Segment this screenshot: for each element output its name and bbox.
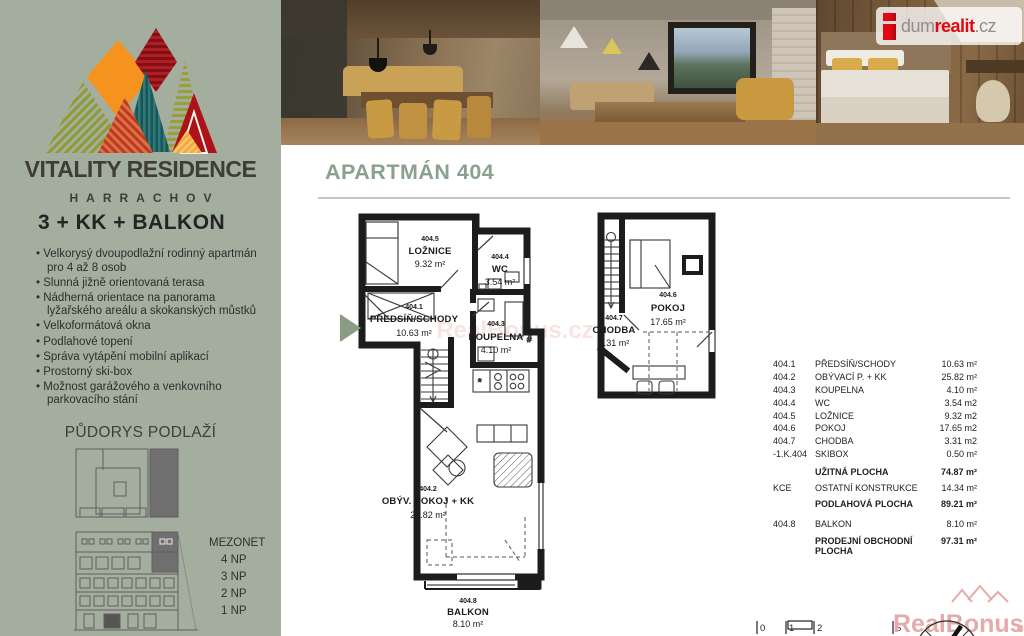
feature-item: Podlahové topení xyxy=(36,336,270,350)
room-name: CHODBA xyxy=(593,325,636,336)
room-area: 3.31 m² xyxy=(599,338,630,348)
floorplan-section-heading: PŮDORYS PODLAŽÍ xyxy=(0,424,281,442)
table-row: -1.K.404 SKIBOX 0.50 m² xyxy=(773,449,977,462)
room-area: 4.10 m² xyxy=(481,345,512,355)
table-row-total: PRODEJNÍ OBCHODNÍ PLOCHA 97.31 m² xyxy=(773,536,977,549)
table-row-total: UŽITNÁ PLOCHA 74.87 m² xyxy=(773,467,977,480)
feature-item: Možnost garážového a venkovního parkovac… xyxy=(36,381,270,408)
logo-text-cz: .cz xyxy=(975,16,997,36)
room-area: 8.10 m² xyxy=(453,619,484,629)
brand-name: VITALITY RESIDENCE xyxy=(0,156,281,183)
room-name: POKOJ xyxy=(651,303,685,314)
room-code: 404.7 xyxy=(605,315,623,322)
mezonet-label: MEZONET xyxy=(209,537,265,549)
room-name: OBÝV. POKOJ + KK xyxy=(382,495,474,507)
room-name: WC xyxy=(492,264,508,275)
scale-label: 0 xyxy=(760,623,765,634)
room-area: 10.63 m² xyxy=(396,328,432,338)
brochure-page: VITALITY RESIDENCE HARRACHOV 3 + KK + BA… xyxy=(0,0,1024,636)
agency-logo: dumrealit.cz xyxy=(876,7,1022,45)
room-code: 404.8 xyxy=(459,598,477,605)
table-row: 404.4 WC 3.54 m2 xyxy=(773,398,977,411)
room-area: 17.65 m² xyxy=(650,317,686,327)
chair-icon xyxy=(976,80,1010,122)
pendant-lamp-icon xyxy=(560,26,588,48)
svg-text:*: * xyxy=(478,377,482,387)
table-row: 404.7 CHODBA 3.31 m2 xyxy=(773,436,977,449)
floor-plan-upper: 404.6 POKOJ 17.65 m² 404.7 CHODBA 3.31 m… xyxy=(593,216,717,395)
logo-text-realit: realit xyxy=(935,16,975,36)
feature-list: Velkorysý dvoupodlažní rodinný apartmán … xyxy=(36,248,270,410)
room-area: 9.32 m² xyxy=(415,259,446,269)
photo-dining-kitchen xyxy=(281,0,540,145)
table-row-total: PODLAHOVÁ PLOCHA 89.21 m² xyxy=(773,499,977,512)
table-row: 404.6 POKOJ 17.65 m2 xyxy=(773,423,977,436)
room-code: 404.3 xyxy=(487,321,505,328)
mountains-logo-icon xyxy=(38,0,242,155)
room-code: 404.6 xyxy=(659,292,677,299)
room-area: 3.54 m² xyxy=(485,277,516,287)
floor-outline-diagram xyxy=(70,444,186,524)
table-row: 404.8 BALKON 8.10 m² xyxy=(773,519,977,532)
area-table: 404.1 PŘEDSÍŇ/SCHODY 10.63 m² 404.2 OBÝV… xyxy=(773,359,977,549)
room-name: KOUPELNA xyxy=(469,332,524,343)
room-area: 25.82 m² xyxy=(410,510,446,520)
floor-label-1np: 1 NP xyxy=(221,605,247,617)
brand-location: HARRACHOV xyxy=(0,191,281,205)
entrance-arrow-icon xyxy=(340,314,361,342)
room-name: LOŽNICE xyxy=(408,245,451,257)
feature-item: Velkorysý dvoupodlažní rodinný apartmán … xyxy=(36,248,270,275)
room-name: PŘEDSÍŇ/SCHODY xyxy=(370,313,459,325)
pendant-lamp-icon xyxy=(377,38,379,60)
scale-label: 1 xyxy=(789,623,794,634)
floor-label-3np: 3 NP xyxy=(221,571,247,583)
room-code: 404.1 xyxy=(405,304,423,311)
svg-text:#: # xyxy=(527,335,532,344)
room-code: 404.5 xyxy=(421,236,439,243)
watermark-tld: .cz xyxy=(1013,620,1024,635)
room-name: BALKON xyxy=(447,607,489,618)
photo-living-dining xyxy=(540,0,816,145)
feature-item: Prostorný ski-box xyxy=(36,366,270,380)
table-row: 404.5 LOŽNICE 9.32 m2 xyxy=(773,411,977,424)
table-row: 404.3 KOUPELNA 4.10 m² xyxy=(773,385,977,398)
table-row: 404.2 OBÝVACÍ P. + KK 25.82 m² xyxy=(773,372,977,385)
scale-label: 2 xyxy=(817,623,822,634)
stairs-upper xyxy=(604,233,619,309)
stairs-lower xyxy=(421,349,448,402)
floor-label-2np: 2 NP xyxy=(221,588,247,600)
feature-item: Nádherná orientace na panorama lyžařskéh… xyxy=(36,292,270,319)
feature-item: Slunná jižně orientovaná terasa xyxy=(36,277,270,291)
room-code: 404.2 xyxy=(419,486,437,493)
sidebar: VITALITY RESIDENCE HARRACHOV 3 + KK + BA… xyxy=(0,0,281,636)
kitchen-counter: * xyxy=(473,370,529,392)
building-elevation-diagram xyxy=(70,528,210,632)
floor-label-4np: 4 NP xyxy=(221,554,247,566)
unit-type-heading: 3 + KK + BALKON xyxy=(38,211,225,235)
logo-text-dum: dum xyxy=(901,16,935,36)
table-row: 404.1 PŘEDSÍŇ/SCHODY 10.63 m² xyxy=(773,359,977,372)
room-code: 404.4 xyxy=(491,254,509,261)
house-i-icon xyxy=(883,13,896,40)
feature-item: Velkoformátová okna xyxy=(36,320,270,334)
floor-plan-lower: # * xyxy=(362,217,546,629)
table-row: KCE OSTATNÍ KONSTRUKCE 14.34 m² xyxy=(773,483,977,496)
feature-item: Správa vytápění mobilní aplikací xyxy=(36,351,270,365)
scale-bar xyxy=(757,621,893,634)
